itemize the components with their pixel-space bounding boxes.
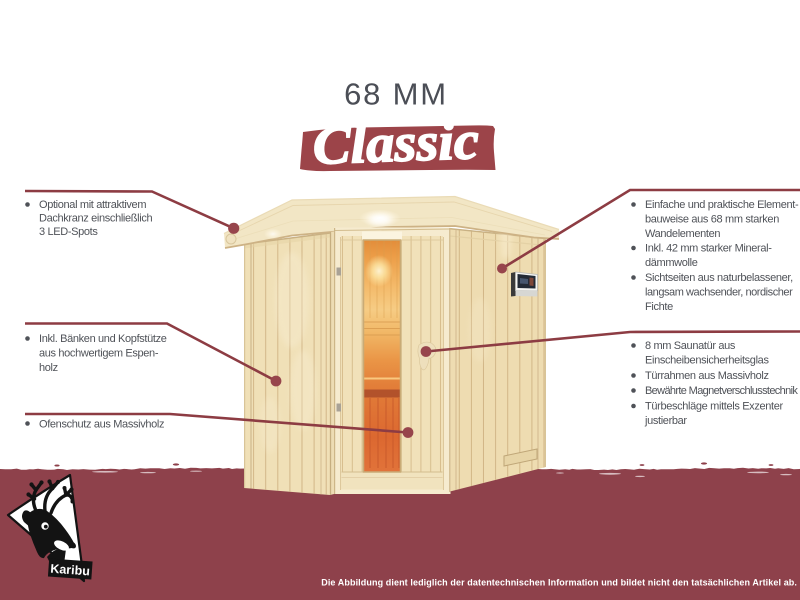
svg-text:Türrahmen aus Massivholz: Türrahmen aus Massivholz <box>645 370 769 382</box>
svg-text:Sichtseiten aus naturbelassene: Sichtseiten aus naturbelassener, <box>645 272 793 284</box>
svg-text:Ofenschutz aus Massivholz: Ofenschutz aus Massivholz <box>39 419 164 431</box>
svg-text:3 LED-Spots: 3 LED-Spots <box>39 226 98 238</box>
svg-text:Inkl. Bänken und Kopfstütze: Inkl. Bänken und Kopfstütze <box>39 333 167 345</box>
svg-text:dämmwolle: dämmwolle <box>645 257 698 269</box>
svg-text:Wandelementen: Wandelementen <box>645 228 720 240</box>
svg-text:Karibu: Karibu <box>50 562 90 579</box>
svg-text:Die Abbildung dient lediglich: Die Abbildung dient lediglich der datent… <box>321 578 797 588</box>
svg-text:Classic: Classic <box>312 110 480 176</box>
svg-text:Türbeschläge mittels Exzenter: Türbeschläge mittels Exzenter <box>645 401 783 413</box>
svg-text:Dachkranz einschließlich: Dachkranz einschließlich <box>39 213 152 225</box>
svg-text:68 MM: 68 MM <box>344 77 448 112</box>
svg-text:Bewährte Magnetverschlusstechn: Bewährte Magnetverschlusstechnik <box>645 385 798 397</box>
svg-text:Inkl. 42 mm starker Mineral-: Inkl. 42 mm starker Mineral- <box>645 243 772 255</box>
svg-text:bauweise aus 68 mm starken: bauweise aus 68 mm starken <box>645 214 779 226</box>
svg-text:Optional mit attraktivem: Optional mit attraktivem <box>39 199 146 211</box>
svg-text:aus hochwertigem Espen-: aus hochwertigem Espen- <box>39 348 159 360</box>
svg-text:holz: holz <box>39 362 58 374</box>
svg-text:justierbar: justierbar <box>644 415 687 427</box>
svg-text:Einscheibensicherheitsglas: Einscheibensicherheitsglas <box>645 355 769 367</box>
svg-text:8 mm Saunatür aus: 8 mm Saunatür aus <box>645 340 736 352</box>
svg-text:langsam wachsender, nordischer: langsam wachsender, nordischer <box>645 287 793 299</box>
svg-text:Einfache und praktische Elemen: Einfache und praktische Element- <box>645 199 799 211</box>
svg-text:Fichte: Fichte <box>645 301 673 313</box>
